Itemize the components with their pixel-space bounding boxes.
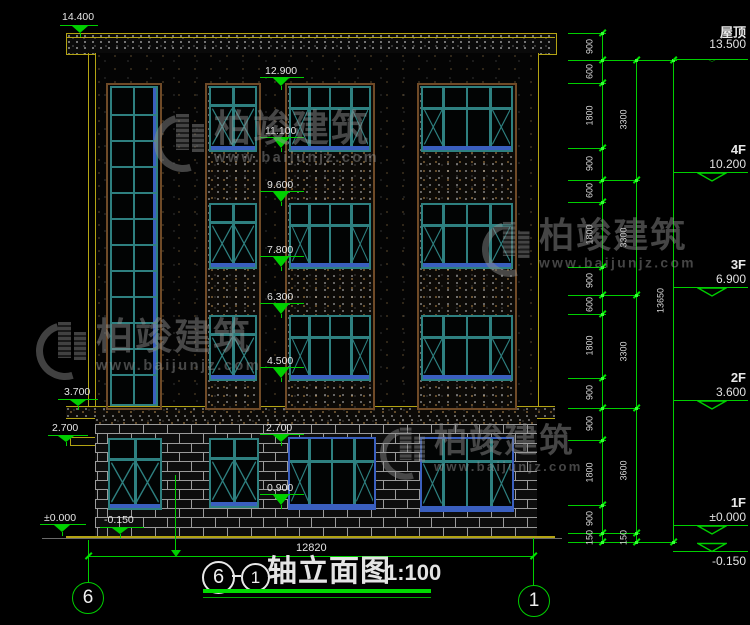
dim-tick: [633, 291, 640, 298]
dim-node: [635, 294, 638, 297]
grid-bubble-1-label: 1: [529, 590, 540, 612]
floor-elevation: -0.150: [676, 555, 746, 567]
level-marker-line: [60, 25, 98, 26]
dim-node: [601, 147, 604, 150]
watermark-logo-icon: [36, 318, 88, 374]
level-marker-triangle: [54, 525, 70, 532]
dim-value: 900: [586, 26, 595, 66]
dim-node: [672, 59, 675, 62]
dim-tick: [633, 538, 640, 545]
floor-name: 屋顶: [676, 22, 746, 41]
dim-chain-line: [602, 33, 603, 542]
dim-extension-line: [568, 180, 640, 181]
dim-node: [601, 82, 604, 85]
bottom-dim-ext-right: [533, 538, 534, 586]
dim-node: [635, 59, 638, 62]
dim-extension-line: [568, 440, 606, 441]
floor-level-line: [673, 172, 748, 173]
dim-extension-line: [568, 408, 640, 409]
level-marker-line: [58, 399, 98, 400]
dim-tick: [599, 176, 606, 183]
floor-elevation: 13.500: [676, 37, 746, 51]
level-marker-line: [40, 524, 86, 525]
drawing-title: 轴立面图: [267, 557, 391, 587]
dim-value: 3300: [620, 100, 629, 140]
title-bubble-right: 1: [241, 563, 270, 592]
watermark-brand: 柏竣建筑: [539, 218, 696, 255]
dim-tick: [599, 374, 606, 381]
dim-tick: [633, 176, 640, 183]
level-marker-label: 3.700: [64, 387, 90, 398]
dim-node: [601, 541, 604, 544]
level-marker-label: 14.400: [62, 12, 94, 23]
facade-left-edge-line: [88, 53, 89, 406]
leader-line: [175, 475, 176, 555]
title-bubble-right-label: 1: [251, 568, 260, 588]
floor-level-line: [673, 551, 748, 552]
ground-line-extension: [42, 538, 562, 539]
drawing-scale: 1:100: [385, 562, 441, 584]
dim-tick: [599, 79, 606, 86]
floor-elevation: 10.200: [676, 157, 746, 171]
dim-value: 3300: [620, 217, 629, 257]
dim-extension-line: [568, 542, 677, 543]
brick-wall: [95, 424, 537, 536]
dim-tick: [599, 291, 606, 298]
dim-node: [635, 179, 638, 182]
dim-value: 1800: [586, 214, 595, 254]
floor-level-symbol: [697, 59, 727, 62]
dim-chain-line: [673, 60, 674, 542]
dim-tick: [599, 404, 606, 411]
dim-extension-line: [568, 148, 606, 149]
dim-extension-line: [568, 83, 606, 84]
dim-tick: [599, 198, 606, 205]
grid-bubble-6: 6: [72, 582, 104, 614]
roof-slab-topline: [66, 37, 555, 38]
floor-level-line: [673, 59, 748, 60]
dim-node: [601, 59, 604, 62]
dim-value: 3300: [620, 331, 629, 371]
dim-value: 1800: [586, 326, 595, 366]
dim-tick: [599, 538, 606, 545]
dim-tick: [670, 56, 677, 63]
floor-level-symbol: [697, 525, 727, 535]
dim-value: 900: [586, 499, 595, 539]
grid-bubble-1: 1: [518, 585, 550, 617]
dim-value: 600: [586, 51, 595, 91]
dim-extension-line: [568, 314, 606, 315]
floor-level-line: [673, 287, 748, 288]
level-marker-tail: [62, 532, 63, 536]
dim-node: [601, 266, 604, 269]
dim-value: 13650: [657, 281, 666, 321]
dim-tick: [599, 310, 606, 317]
watermark-arc: [26, 312, 104, 390]
dim-extension-line: [568, 533, 640, 534]
watermark-tower: [58, 322, 71, 358]
dim-tick: [599, 56, 606, 63]
dim-node: [601, 504, 604, 507]
dim-value: 1800: [586, 95, 595, 135]
dim-node: [672, 541, 675, 544]
level-marker-line: [48, 435, 88, 436]
floor-elevation: 3.600: [676, 385, 746, 399]
title-underline-thick: [203, 589, 431, 593]
dim-node: [601, 377, 604, 380]
dim-value: 600: [586, 171, 595, 211]
level-marker-label: 2.700: [52, 423, 78, 434]
dim-node: [635, 541, 638, 544]
dim-chain-line: [636, 60, 637, 542]
dim-tick: [670, 538, 677, 545]
floor-level-line: [673, 525, 748, 526]
dim-tick: [599, 501, 606, 508]
floor-elevation: 6.900: [676, 272, 746, 286]
dim-value: 1800: [586, 452, 595, 492]
watermark-tower: [74, 332, 86, 360]
dim-node: [601, 32, 604, 35]
dim-value: 150: [586, 517, 595, 557]
watermark-url: www.baijunjz.com: [539, 256, 696, 271]
dim-tick: [633, 404, 640, 411]
bottom-dim-value: 12820: [296, 543, 327, 554]
dim-extension-line: [568, 505, 606, 506]
dim-node: [601, 201, 604, 204]
dim-extension-line: [568, 267, 606, 268]
dim-node: [635, 532, 638, 535]
dim-node: [601, 313, 604, 316]
dim-tick: [599, 436, 606, 443]
floor-name: 4F: [676, 142, 746, 157]
dim-value: 600: [586, 284, 595, 324]
upper-facade-wall: [95, 53, 539, 406]
title-bubble-left-label: 6: [213, 566, 224, 589]
watermark-text: 柏竣建筑www.baijunjz.com: [539, 218, 696, 271]
floor-level-line: [673, 400, 748, 401]
dim-node: [601, 294, 604, 297]
dim-extension-line: [568, 33, 606, 34]
level-marker-label: ±0.000: [44, 513, 76, 524]
floor-name: 2F: [676, 370, 746, 385]
dim-extension-line: [568, 202, 606, 203]
floor-level-symbol: [697, 400, 727, 410]
dim-value: 3600: [620, 450, 629, 490]
dim-value: 900: [586, 144, 595, 184]
floor-level-symbol: [697, 287, 727, 297]
dim-node: [601, 439, 604, 442]
dim-tick: [633, 56, 640, 63]
dim-tick: [633, 529, 640, 536]
bottom-dim-ext-left: [88, 540, 89, 583]
title-dash: [232, 575, 241, 577]
dim-extension-line: [568, 295, 640, 296]
dim-node: [601, 179, 604, 182]
elevation-drawing: 12820 6 1 6 1 轴立面图 1:100 14.4003.7002.70…: [0, 0, 750, 625]
level-marker-triangle: [72, 26, 88, 33]
floor-name: 3F: [676, 257, 746, 272]
dim-value: 150: [620, 517, 629, 557]
dim-tick: [599, 529, 606, 536]
dim-value: 900: [586, 261, 595, 301]
dim-tick: [599, 29, 606, 36]
dim-extension-line: [568, 60, 677, 61]
dim-node: [601, 532, 604, 535]
dim-tick: [599, 263, 606, 270]
grid-bubble-6-label: 6: [83, 587, 94, 609]
side-ledge: [70, 437, 97, 446]
floor-level-symbol: [697, 172, 727, 182]
floor-elevation: ±0.000: [676, 510, 746, 524]
level-marker-tail: [66, 442, 67, 446]
dim-extension-line: [568, 378, 606, 379]
title-underline-thin: [203, 597, 431, 598]
dim-node: [635, 407, 638, 410]
floor-name: 1F: [676, 495, 746, 510]
dim-value: 900: [586, 404, 595, 444]
dim-tick: [599, 144, 606, 151]
dim-value: 900: [586, 373, 595, 413]
floor-level-symbol: [697, 542, 727, 553]
dim-node: [601, 407, 604, 410]
